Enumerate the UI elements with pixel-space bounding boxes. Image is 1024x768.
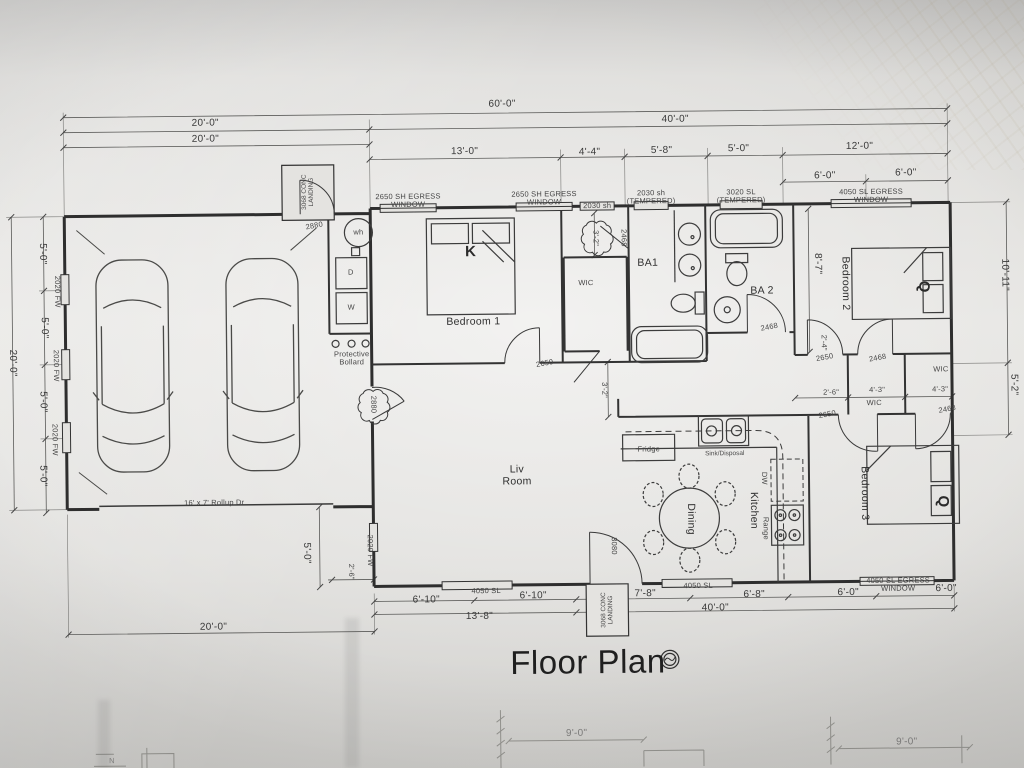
bottom-partial-drawings xyxy=(93,705,973,768)
dining-window-callout: 4050 SL xyxy=(683,582,712,591)
bedroom1-label: Bedroom 1 xyxy=(446,316,500,328)
north-label: N xyxy=(109,757,115,765)
dim-entry-width: 2'-6" xyxy=(347,564,355,580)
bed-king-label: K xyxy=(465,244,476,261)
dim-entry-depth: 5'-0" xyxy=(301,542,312,564)
front-landing-callout: 3068 CONC LANDING xyxy=(301,168,316,216)
wic2-label: WIC xyxy=(933,365,948,373)
dryer-label: D xyxy=(348,269,354,277)
entry-window-callout: 2020 FW xyxy=(365,535,374,567)
range-label: Range xyxy=(761,517,769,540)
wic3-label: WIC xyxy=(867,399,882,407)
dim-cloud-3-2: 3'-2" xyxy=(591,230,599,246)
wic1-label: WIC xyxy=(578,279,593,287)
dim-hall-2-6: 2'-6" xyxy=(823,388,839,396)
dim-house-width-bottom: 40'-0" xyxy=(702,602,729,613)
dim-bedroom2-width: 12'-0" xyxy=(846,141,873,152)
laundry-fixtures xyxy=(331,218,374,347)
dim-next-view-a: 9'-0" xyxy=(566,728,588,739)
bedroom1-window-callout-a: 2650 SH EGRESS WINDOW xyxy=(375,192,441,209)
dim-bedroom2-depth: 10'-11" xyxy=(999,259,1010,292)
fridge-label: Fridge xyxy=(637,445,660,453)
dim-garage-seg4: 5'-0" xyxy=(37,465,48,487)
bed-king-icon xyxy=(426,218,515,315)
garage-window-callout-a: 2020 FW xyxy=(53,276,62,308)
dim-dining-a: 7'-8" xyxy=(634,588,656,599)
dim-wic2-width: 4'-3" xyxy=(932,385,948,393)
dim-wic-width: 4'-4" xyxy=(579,147,601,158)
ba2-label: BA 2 xyxy=(750,285,774,297)
dim-hall-depth: 5'-2" xyxy=(1008,374,1019,396)
drawing-title: Floor Plan xyxy=(510,642,666,682)
floor-plan-drawing: 60'-0" 20'-0" 40'-0" 20'-0" 13'-0" 4'-4"… xyxy=(0,0,1024,768)
dim-wic3-width: 4'-3" xyxy=(869,386,885,394)
dim-bedroom2-half-b: 6'-0" xyxy=(895,167,917,178)
garage-house-door-callout: 2880 xyxy=(369,396,377,414)
dim-liv-window-a: 6'-10" xyxy=(413,594,440,605)
dim-garage-depth: 20'-0" xyxy=(7,350,18,377)
dim-bedroom3-a: 6'-0" xyxy=(837,587,859,598)
dim-ba2-depth: 8'-7" xyxy=(812,253,823,275)
wic1-door-callout: 2468 xyxy=(619,229,627,247)
dim-garage-seg2: 5'-0" xyxy=(39,317,50,339)
dim-ba2-width: 5'-0" xyxy=(728,143,750,154)
water-heater-label: wh xyxy=(353,228,363,236)
dim-garage-seg1: 5'-0" xyxy=(37,243,48,265)
ba1-window-callout: 2030 sh (TEMPERED) xyxy=(626,189,676,206)
dim-house-width: 40'-0" xyxy=(662,114,689,125)
bed-queen2-label: Q xyxy=(915,281,932,293)
liv-window-callout: 4050 SL xyxy=(471,587,500,596)
bedroom3-label: Bedroom 3 xyxy=(858,466,870,520)
ba1-label: BA1 xyxy=(637,258,658,270)
kitchen-label: Kitchen xyxy=(747,492,759,529)
sink-disposal-label: Sink/Disposal xyxy=(705,450,744,458)
dimension-lines xyxy=(5,103,1014,638)
bedroom3-window-callout: 4050 SL EGRESS WINDOW xyxy=(862,576,934,593)
dim-next-view-b: 9'-0" xyxy=(896,736,918,747)
dim-hall-width: 3'-2" xyxy=(600,382,608,398)
bedroom2-window-callout: 4050 SL EGRESS WINDOW xyxy=(838,188,904,205)
rollup-door-label: 16' x 7' Rollup Dr xyxy=(184,499,244,508)
car-icon xyxy=(76,228,319,494)
bedroom1-window-callout-b: 2650 SH EGRESS WINDOW xyxy=(511,190,577,207)
dim-overall-width: 60'-0" xyxy=(488,98,515,109)
bollard-label: Protective Bollard xyxy=(328,350,376,367)
dim-bedroom1-width: 13'-0" xyxy=(451,146,478,157)
dim-garage-width-bottom: 20'-0" xyxy=(200,621,227,632)
washer-label: W xyxy=(348,304,355,312)
dim-garage-width: 20'-0" xyxy=(192,118,219,129)
dishwasher-label: DW xyxy=(760,472,768,485)
dim-ba1-width: 5'-8" xyxy=(651,145,673,156)
dining-label: Dining xyxy=(684,503,696,535)
ba2-window-callout: 3020 SL (TEMPERED) xyxy=(716,188,766,205)
dim-bedroom2-half-a: 6'-0" xyxy=(814,170,836,181)
living-room-label: Liv Room xyxy=(496,464,538,488)
bed-queen3-label: Q xyxy=(934,495,951,507)
dim-bedroom3-b: 6'-0" xyxy=(935,583,957,594)
bedroom2-label: Bedroom 2 xyxy=(839,256,851,310)
dim-liv-total: 13'-8" xyxy=(466,611,493,622)
rear-landing-callout: 3068 CONC LANDING xyxy=(600,587,615,633)
wic-window-callout: 2030 sh xyxy=(583,202,611,211)
patio-door-callout: 3080 xyxy=(609,537,617,555)
floor-plan-photo: 60'-0" 20'-0" 40'-0" 20'-0" 13'-0" 4'-4"… xyxy=(0,0,1024,768)
garage-window-callout-b: 2020 FW xyxy=(51,350,60,382)
dim-garage-width-2: 20'-0" xyxy=(192,134,219,145)
dim-garage-seg3: 5'-0" xyxy=(38,391,49,413)
garage-window-callout-c: 2020 FW xyxy=(50,424,59,456)
dim-dining-b: 6'-8" xyxy=(743,589,765,600)
dim-closet-2-4: 2'-4" xyxy=(819,335,827,351)
concrete-landings xyxy=(282,162,629,640)
dim-liv-window-b: 6'-10" xyxy=(520,590,547,601)
